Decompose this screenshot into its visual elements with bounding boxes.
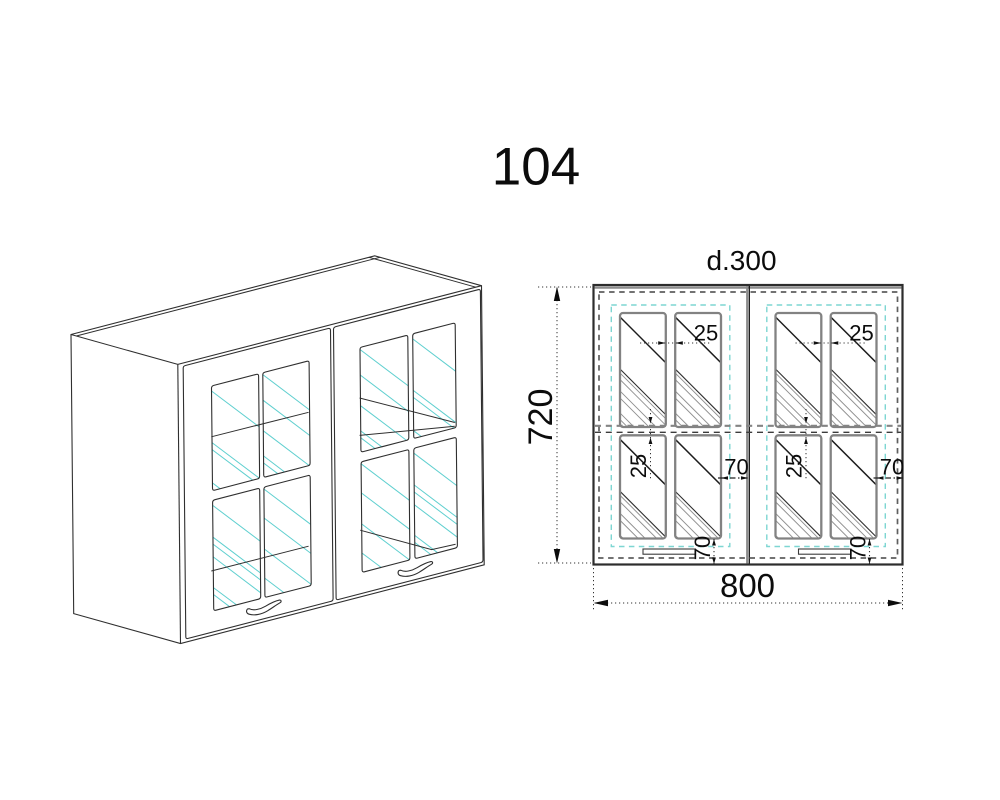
svg-text:25: 25: [626, 454, 651, 478]
svg-text:104: 104: [492, 138, 580, 197]
svg-text:25: 25: [694, 321, 718, 346]
svg-text:d.300: d.300: [706, 245, 776, 276]
svg-text:70: 70: [724, 455, 748, 480]
svg-text:800: 800: [720, 567, 775, 604]
svg-text:720: 720: [522, 389, 560, 446]
svg-text:70: 70: [690, 536, 715, 560]
